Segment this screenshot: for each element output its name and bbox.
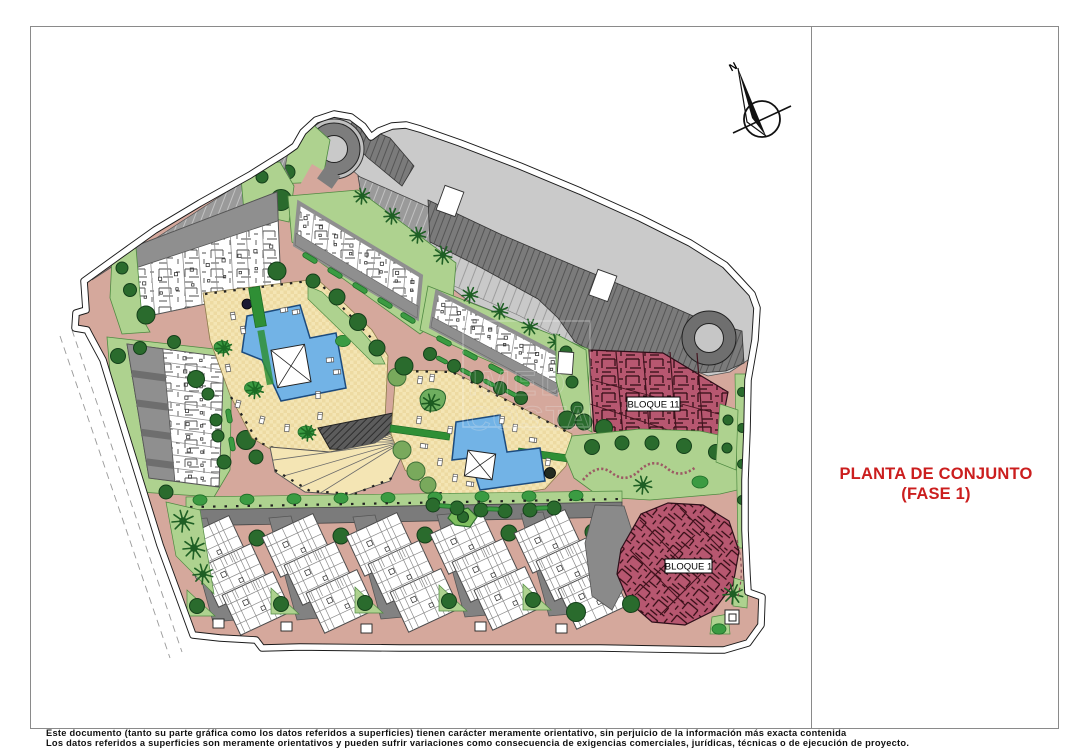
svg-text:Este documento (tanto su parte: Este documento (tanto su parte gráfica c… [46,728,847,738]
svg-text:BLOQUE 1: BLOQUE 1 [665,562,713,573]
svg-text:(FASE 1): (FASE 1) [901,485,970,503]
svg-text:Los datos referidos a superfic: Los datos referidos a superficies son me… [46,738,909,748]
svg-text:COSTA: COSTA [466,400,592,438]
svg-text:BLOQUE 11: BLOQUE 11 [627,400,679,411]
svg-text:PLANTA DE CONJUNTO: PLANTA DE CONJUNTO [839,465,1032,483]
svg-text:IMED: IMED [468,365,569,403]
